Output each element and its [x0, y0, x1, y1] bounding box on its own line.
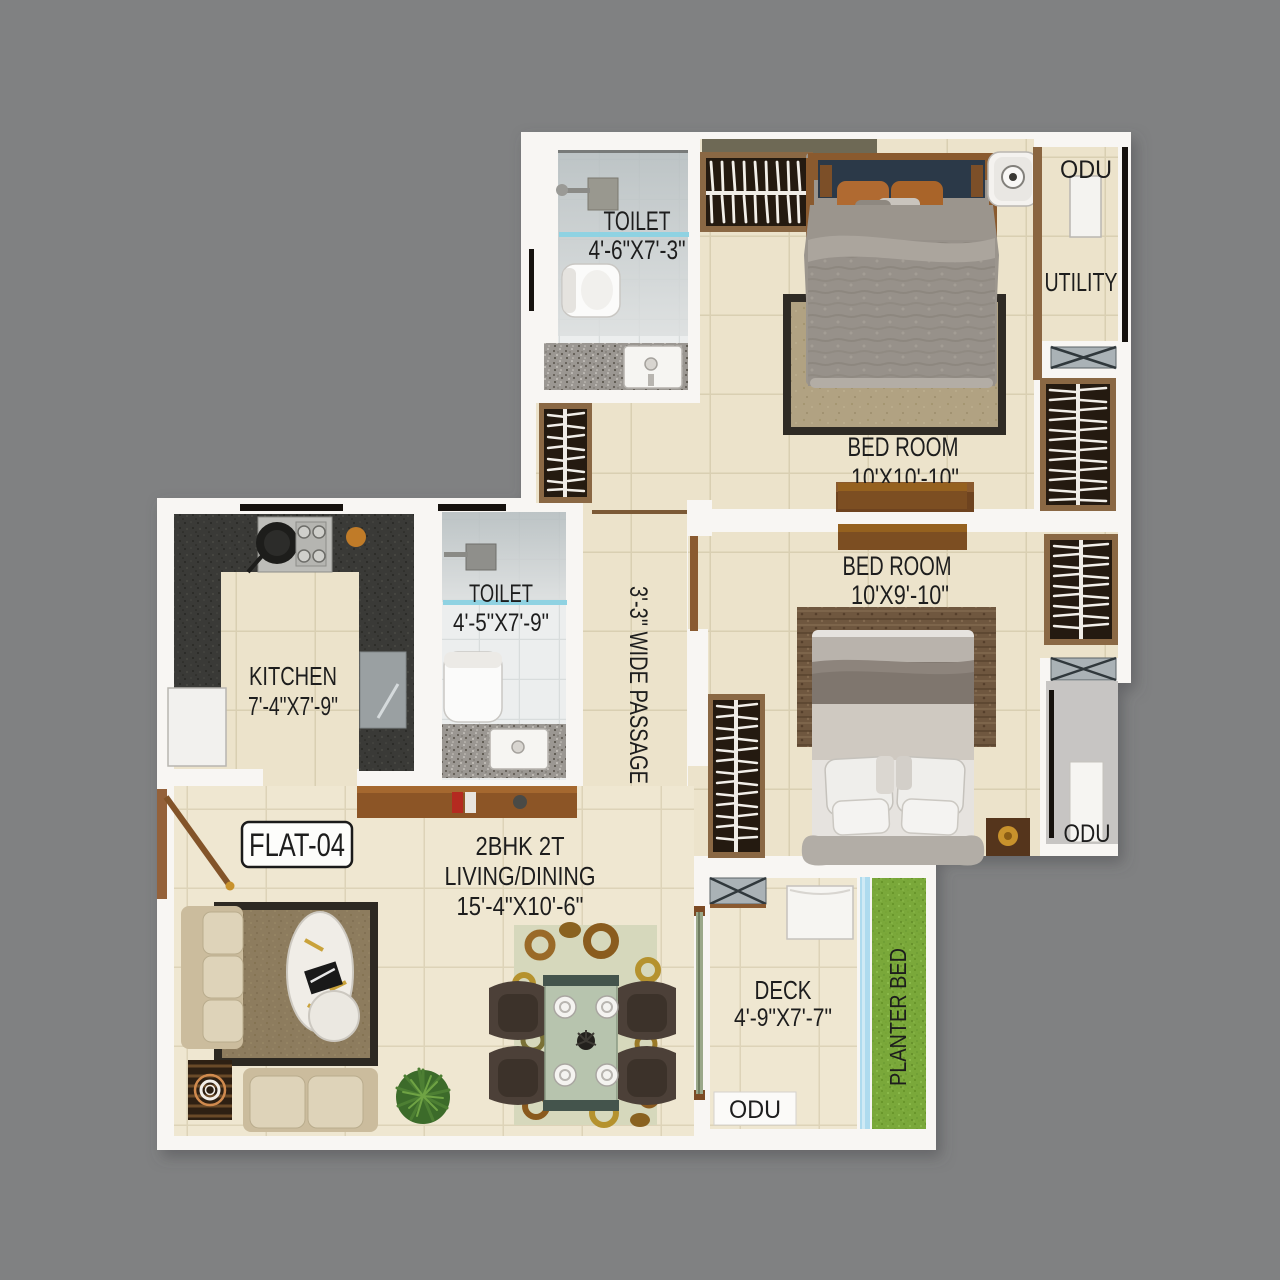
svg-text:15'-4"X10'-6": 15'-4"X10'-6" — [457, 891, 584, 921]
svg-text:4'-5"X7'-9": 4'-5"X7'-9" — [453, 609, 549, 637]
svg-text:3'-3" WIDE PASSAGE: 3'-3" WIDE PASSAGE — [624, 586, 652, 784]
svg-text:4'-9"X7'-7": 4'-9"X7'-7" — [734, 1004, 832, 1032]
svg-text:ODU: ODU — [729, 1096, 781, 1124]
svg-text:UTILITY: UTILITY — [1045, 267, 1118, 297]
svg-text:BED ROOM: BED ROOM — [848, 432, 959, 462]
svg-text:2BHK 2T: 2BHK 2T — [476, 831, 565, 861]
svg-text:ODU: ODU — [1064, 820, 1111, 848]
svg-text:4'-6"X7'-3": 4'-6"X7'-3" — [589, 235, 686, 265]
svg-text:DECK: DECK — [755, 975, 813, 1005]
svg-text:7'-4"X7'-9": 7'-4"X7'-9" — [248, 691, 338, 721]
svg-text:TOILET: TOILET — [469, 580, 533, 608]
svg-text:PLANTER BED: PLANTER BED — [885, 948, 911, 1086]
svg-text:KITCHEN: KITCHEN — [249, 661, 337, 691]
svg-text:FLAT-04: FLAT-04 — [249, 827, 345, 863]
svg-text:BED ROOM: BED ROOM — [843, 551, 952, 581]
svg-text:TOILET: TOILET — [604, 206, 671, 236]
svg-text:LIVING/DINING: LIVING/DINING — [445, 861, 596, 891]
svg-text:10'X9'-10": 10'X9'-10" — [851, 580, 949, 610]
svg-text:ODU: ODU — [1060, 156, 1112, 184]
